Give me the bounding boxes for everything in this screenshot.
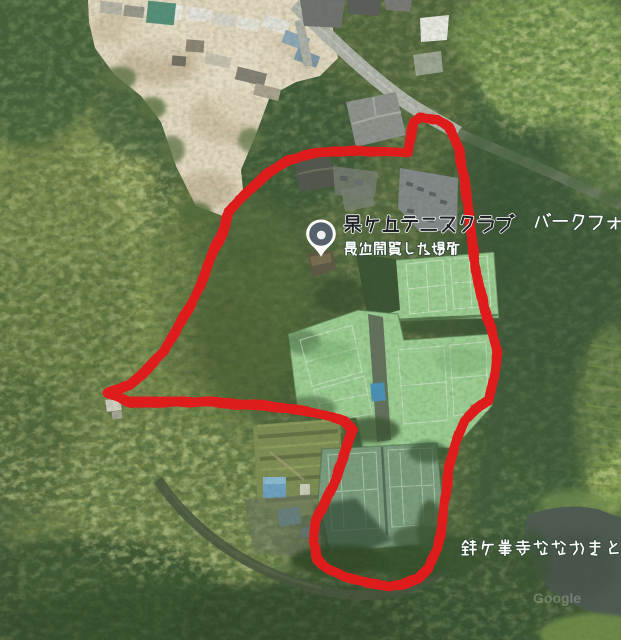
svg-text:Google: Google bbox=[533, 590, 581, 606]
